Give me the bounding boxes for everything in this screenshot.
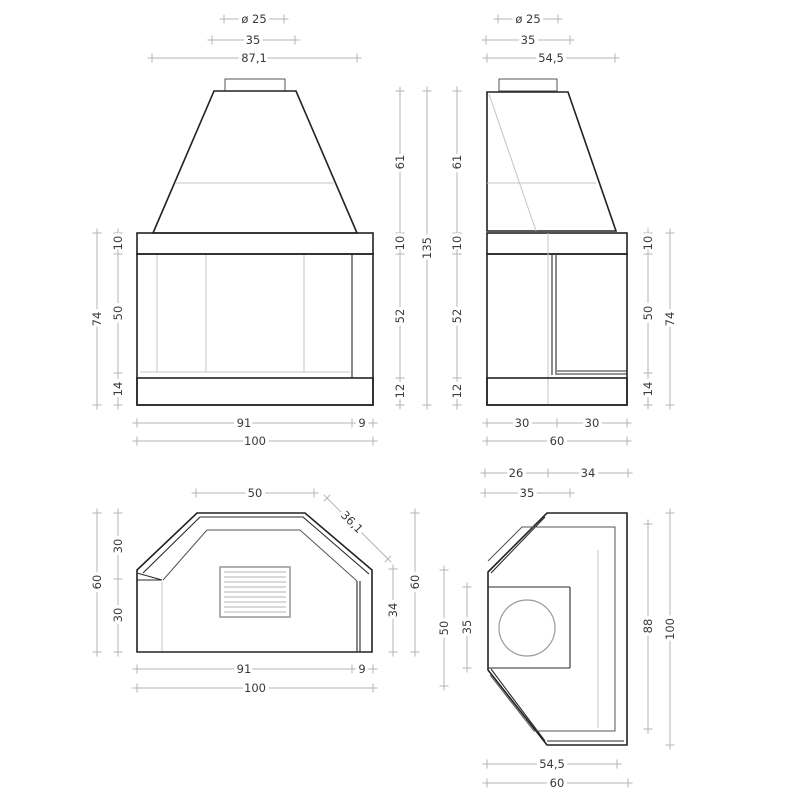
plan-side-dim-total-length: 100 <box>663 513 677 745</box>
plan-front-left-notch <box>137 573 162 580</box>
side-base <box>487 378 627 405</box>
plan-side-dim-total-depth: 60 <box>487 776 628 790</box>
dim-label: ø 25 <box>241 12 266 26</box>
dim-label: 100 <box>244 434 266 448</box>
plan-front-dim-left-total: 60 <box>90 513 104 652</box>
side-dim-flue-dia: ø 25 <box>498 12 558 26</box>
plan-front-dim-right-glass: 34 <box>386 569 400 652</box>
side-dim-hood-depth: 54,5 <box>487 51 615 65</box>
dim-label: 35 <box>246 33 261 47</box>
dim-label: 88 <box>641 619 655 634</box>
front-dim-glass-left: 50 <box>111 254 125 373</box>
plan-side-dim-inner-length: 88 <box>641 524 655 729</box>
front-dim-base-right: 12 <box>393 378 407 405</box>
dim-label: 61 <box>450 155 464 170</box>
side-body-outline <box>487 254 627 405</box>
plan-side-dim-firebox-width: 35 <box>460 587 474 668</box>
dim-label: 61 <box>393 155 407 170</box>
front-dim-flue-dia: ø 25 <box>224 12 284 26</box>
dim-label: 35 <box>521 33 536 47</box>
dim-label: 87,1 <box>241 51 267 65</box>
dim-label: 34 <box>581 466 596 480</box>
dim-label: 12 <box>393 384 407 399</box>
front-base <box>137 378 373 405</box>
dim-label: 10 <box>393 236 407 251</box>
dim-label: 30 <box>111 608 125 623</box>
plan-side-dim-back-depth: 26 <box>485 466 548 480</box>
front-dim-total-width: 100 <box>137 434 373 448</box>
front-hood-outline <box>153 91 357 233</box>
side-dim-band-right: 10 <box>641 233 655 254</box>
plan-front-dim-chamfer: 36,1 <box>327 498 388 559</box>
dim-label: 52 <box>393 309 407 324</box>
dim-label: 74 <box>90 312 104 327</box>
plan-side-frame <box>491 669 545 741</box>
dim-label: 60 <box>550 776 565 790</box>
plan-side-dim-firebox-depth: 35 <box>485 486 570 500</box>
dim-label: 30 <box>585 416 600 430</box>
plan-front-dim-left-lower: 30 <box>111 579 125 652</box>
side-view: ø 25 35 54,5 135 61 10 52 12 <box>420 12 677 448</box>
side-dim-body-height: 74 <box>663 233 677 405</box>
plan-side-inner-edge <box>488 527 615 731</box>
front-dim-hood-width: 87,1 <box>152 51 357 65</box>
front-dim-glass-return: 9 <box>352 416 373 430</box>
side-dim-band-left: 10 <box>450 233 464 254</box>
plan-front-dim-right-total: 60 <box>408 513 422 652</box>
dim-label: 12 <box>450 384 464 399</box>
dim-label: 9 <box>358 662 365 676</box>
dim-label: 60 <box>90 575 104 590</box>
front-dim-body-height: 74 <box>90 233 104 405</box>
side-dim-base-left: 12 <box>450 378 464 405</box>
dim-label: 50 <box>641 306 655 321</box>
plan-front-dim-opening-width: 91 <box>137 662 352 676</box>
dim-label: 9 <box>358 416 365 430</box>
side-dim-total-depth: 60 <box>487 434 627 448</box>
dim-label: 30 <box>515 416 530 430</box>
dim-label: 135 <box>420 237 434 259</box>
dim-label: 100 <box>663 618 677 640</box>
dim-label: 91 <box>237 416 252 430</box>
dim-label: 10 <box>450 236 464 251</box>
plan-side-view: 26 34 35 50 35 88 100 54,5 <box>437 466 677 790</box>
front-dim-base-left: 14 <box>111 373 125 405</box>
side-flue-collar <box>499 79 557 91</box>
side-hood-outline <box>487 92 616 231</box>
plan-front-dim-total-width: 100 <box>137 681 373 695</box>
plan-front-frame <box>143 517 200 573</box>
dim-label: 50 <box>437 621 451 636</box>
fireplace-technical-drawing: ø 25 35 87,1 10 50 14 74 61 <box>0 0 800 800</box>
dim-label: 50 <box>111 306 125 321</box>
side-top-band <box>487 233 627 254</box>
dim-label: 60 <box>408 575 422 590</box>
dim-label: 52 <box>450 309 464 324</box>
plan-side-dim-chamfer-span: 54,5 <box>487 757 617 771</box>
dim-label: 10 <box>641 236 655 251</box>
front-dim-glass-right: 52 <box>393 254 407 378</box>
plan-front-grille-slats <box>224 572 286 612</box>
dim-label: 30 <box>111 539 125 554</box>
plan-side-dim-glass-span: 50 <box>437 570 451 686</box>
side-dim-front-half: 30 <box>487 416 557 430</box>
side-dim-glass-right: 50 <box>641 254 655 373</box>
front-view: ø 25 35 87,1 10 50 14 74 61 <box>90 12 407 448</box>
dim-label: 36,1 <box>338 508 366 536</box>
plan-front-dim-left-upper: 30 <box>111 513 125 579</box>
front-dim-band-left: 10 <box>111 233 125 254</box>
plan-front-inner-edge <box>163 530 207 580</box>
side-dim-back-half: 30 <box>557 416 627 430</box>
dim-label: 14 <box>111 382 125 397</box>
dim-label: 35 <box>460 620 474 635</box>
front-body-outline <box>137 254 373 405</box>
plan-side-outline <box>488 513 627 745</box>
side-dim-hood-height: 61 <box>450 91 464 233</box>
front-top-band <box>137 233 373 254</box>
plan-side-dim-front-depth: 34 <box>548 466 628 480</box>
front-dim-band-right: 10 <box>393 233 407 254</box>
side-dim-total-height: 135 <box>420 91 434 405</box>
dim-label: 50 <box>248 486 263 500</box>
dim-label: 10 <box>111 236 125 251</box>
side-hood-inner-slope <box>489 94 536 231</box>
side-dim-glass-left: 52 <box>450 254 464 378</box>
plan-front-dim-glass-return: 9 <box>352 662 373 676</box>
drawing-sheet: ø 25 35 87,1 10 50 14 74 61 <box>0 0 800 800</box>
dim-label: 100 <box>244 681 266 695</box>
front-flue-collar <box>225 79 285 91</box>
front-dim-opening-width: 91 <box>137 416 352 430</box>
dim-label: ø 25 <box>515 12 540 26</box>
dim-label: 91 <box>237 662 252 676</box>
dim-label: 54,5 <box>538 51 564 65</box>
plan-side-frame <box>491 517 545 573</box>
plan-front-dim-top-width: 50 <box>196 486 314 500</box>
plan-side-flue-circle <box>499 600 555 656</box>
dim-label: 14 <box>641 382 655 397</box>
front-dim-hood-height: 61 <box>393 91 407 233</box>
dim-label: 74 <box>663 312 677 327</box>
plan-front-view: 50 36,1 30 30 60 34 60 91 <box>90 486 422 695</box>
dim-label: 35 <box>520 486 535 500</box>
dim-label: 60 <box>550 434 565 448</box>
dim-label: 54,5 <box>539 757 565 771</box>
front-dim-collar-width: 35 <box>212 33 295 47</box>
side-dim-collar-width: 35 <box>486 33 570 47</box>
dim-label: 26 <box>509 466 524 480</box>
side-dim-base-right: 14 <box>641 373 655 405</box>
dim-label: 34 <box>386 603 400 618</box>
